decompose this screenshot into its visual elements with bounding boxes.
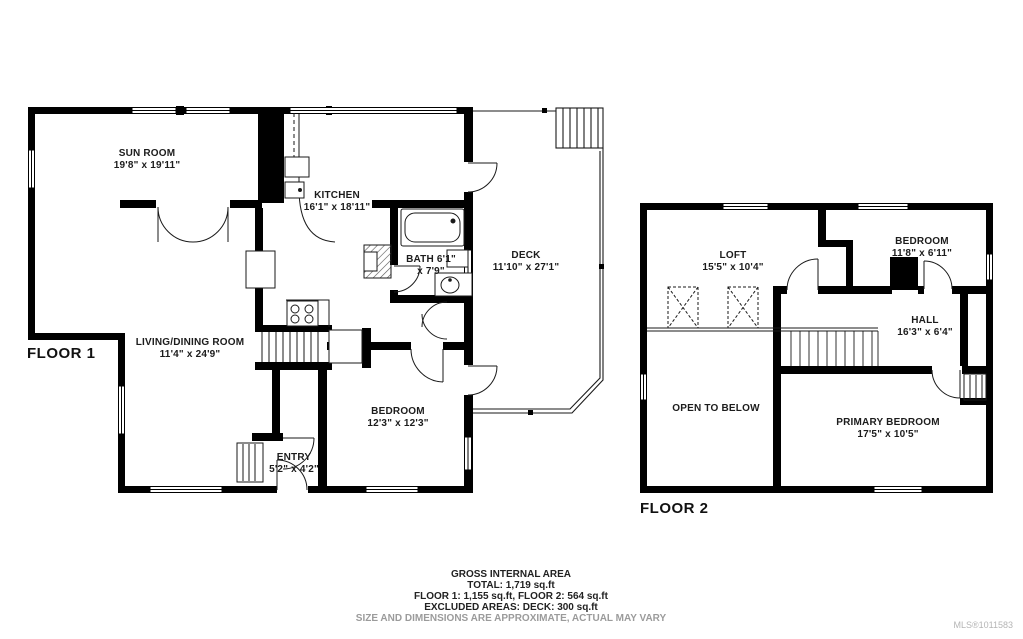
room-label-entry: ENTRY 5'2" x 4'2" — [269, 452, 319, 476]
room-label-bedroom-f1: BEDROOM 12'3" x 12'3" — [367, 406, 428, 430]
room-label-open-to-below: OPEN TO BELOW — [672, 403, 759, 415]
room-label-sun-room: SUN ROOM 19'8" x 19'11" — [114, 148, 181, 172]
total-area: TOTAL: 1,719 sq.ft — [356, 580, 666, 591]
excluded-areas: EXCLUDED AREAS: DECK: 300 sq.ft — [356, 602, 666, 613]
room-dims: 16'3" x 6'4" — [897, 327, 953, 339]
floorplan-drawing — [0, 0, 1023, 639]
room-dims: 11'10" x 27'1" — [493, 262, 560, 274]
floor2-stairs — [647, 328, 878, 366]
room-label-hall: HALL 16'3" x 6'4" — [897, 315, 953, 339]
room-dims: 15'5" x 10'4" — [702, 262, 763, 274]
room-dims: 11'8" x 6'11" — [892, 248, 952, 260]
room-name: OPEN TO BELOW — [672, 403, 759, 415]
room-name: HALL — [897, 315, 953, 327]
floor1-stairs — [262, 332, 318, 362]
floor2-title: FLOOR 2 — [640, 500, 709, 517]
room-name: SUN ROOM — [114, 148, 181, 160]
room-dims: 19'8" x 19'11" — [114, 160, 181, 172]
room-name: LIVING/DINING ROOM — [136, 337, 245, 349]
room-dims: 11'4" x 24'9" — [136, 349, 245, 361]
room-dims: 16'1" x 18'11" — [304, 202, 371, 214]
room-label-loft: LOFT 15'5" x 10'4" — [702, 250, 763, 274]
room-name: DECK — [493, 250, 560, 262]
room-name: BEDROOM — [892, 236, 952, 248]
disclaimer: SIZE AND DIMENSIONS ARE APPROXIMATE, ACT… — [356, 613, 666, 624]
room-dims: 5'2" x 4'2" — [269, 464, 319, 476]
room-name: LOFT — [702, 250, 763, 262]
room-name: ENTRY — [269, 452, 319, 464]
room-name: PRIMARY BEDROOM — [836, 417, 940, 429]
room-label-bedroom-f2: BEDROOM 11'8" x 6'11" — [892, 236, 952, 260]
room-name: BATH — [406, 254, 434, 265]
room-label-deck: DECK 11'10" x 27'1" — [493, 250, 560, 274]
room-label-primary-bedroom: PRIMARY BEDROOM 17'5" x 10'5" — [836, 417, 940, 441]
room-label-living-dining: LIVING/DINING ROOM 11'4" x 24'9" — [136, 337, 245, 361]
floor1-title: FLOOR 1 — [27, 345, 96, 362]
area-summary: GROSS INTERNAL AREA TOTAL: 1,719 sq.ft F… — [356, 569, 666, 624]
room-name: KITCHEN — [304, 190, 371, 202]
room-label-bath: BATH 6'1" x 7'9" — [402, 254, 460, 278]
room-dims: 17'5" x 10'5" — [836, 429, 940, 441]
floor1-walls — [28, 106, 473, 493]
room-label-kitchen: KITCHEN 16'1" x 18'11" — [304, 190, 371, 214]
gross-internal-area-heading: GROSS INTERNAL AREA — [356, 569, 666, 580]
room-name: BEDROOM — [367, 406, 428, 418]
room-dims: 12'3" x 12'3" — [367, 418, 428, 430]
floorplan-page: SUN ROOM 19'8" x 19'11" KITCHEN 16'1" x … — [0, 0, 1023, 639]
mls-number: MLS®1011583 — [953, 620, 1013, 630]
floor-areas: FLOOR 1: 1,155 sq.ft, FLOOR 2: 564 sq.ft — [356, 591, 666, 602]
